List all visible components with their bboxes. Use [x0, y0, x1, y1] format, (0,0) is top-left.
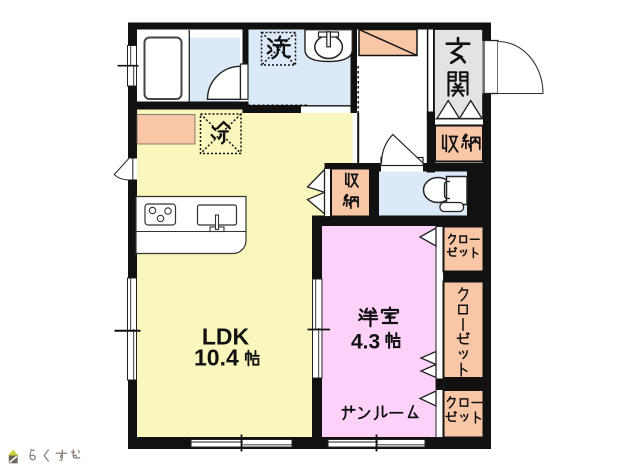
svg-text:4.3: 4.3 — [351, 331, 380, 354]
svg-text:10.4: 10.4 — [194, 345, 239, 371]
